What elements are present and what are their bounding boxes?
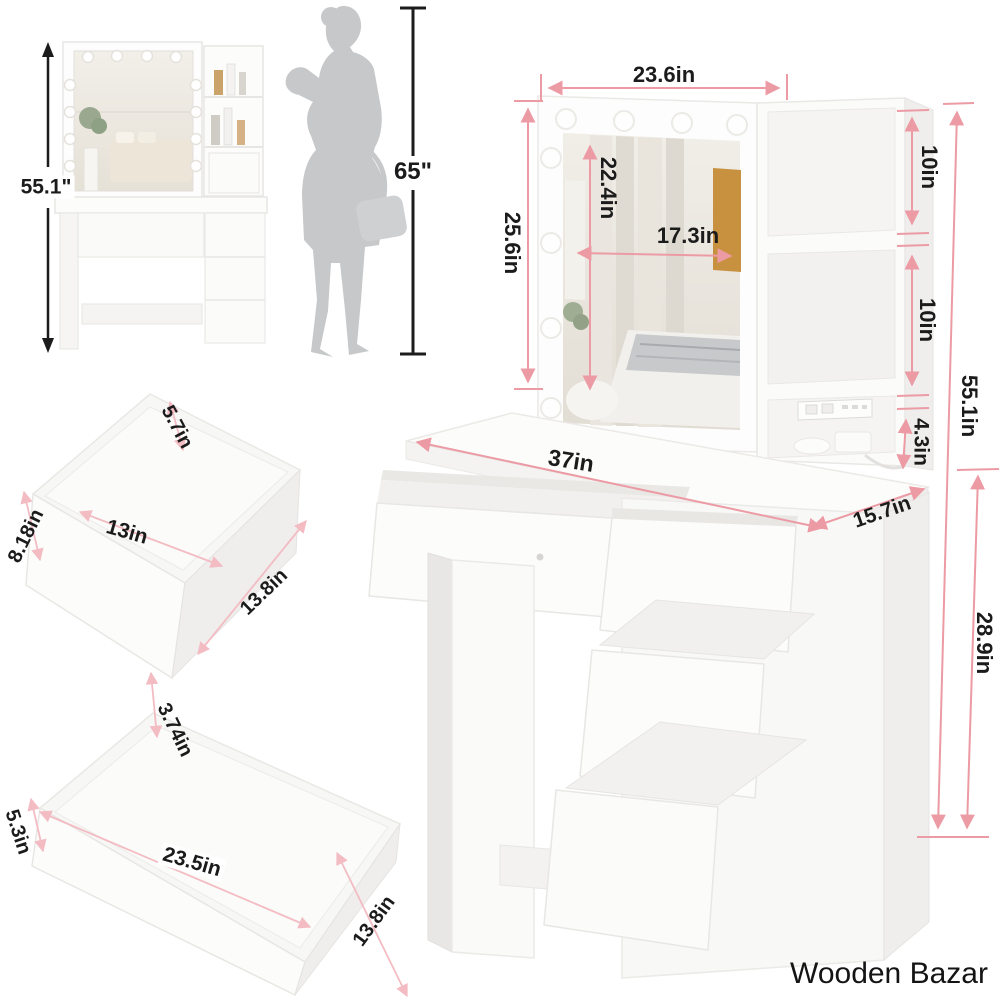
detached-drawer-bottom [32,713,400,995]
dim-mirror-height-label: 22.4in [597,157,619,219]
dim-shelf-bottom-label: 4.3in [911,418,932,466]
dim-top-width-label: 23.6in [633,64,695,86]
diagram-artwork [0,0,1000,1000]
dim-left-height-label: 25.6in [501,212,523,274]
dim-total-height-label: 55.1in [958,375,980,437]
person-height-label: 65" [391,159,435,185]
dim-cabinet-height-label: 28.9in [973,612,995,674]
brand-watermark: Wooden Bazar [790,957,988,991]
person-silhouette [286,6,409,357]
photo-height-label: 55.1" [18,176,75,199]
product-dimension-diagram: 55.1" 65" 23.6in 25.6in 22.4in 17.3in 10… [0,0,1000,1000]
detached-drawer-top [26,394,300,678]
reference-photo-vanity [55,42,267,349]
main-vanity [369,96,933,978]
dim-mirror-width-label: 17.3in [657,225,719,247]
dim-shelf-top-label: 10in [918,145,940,189]
dim-shelf-middle-label: 10in [916,298,938,342]
